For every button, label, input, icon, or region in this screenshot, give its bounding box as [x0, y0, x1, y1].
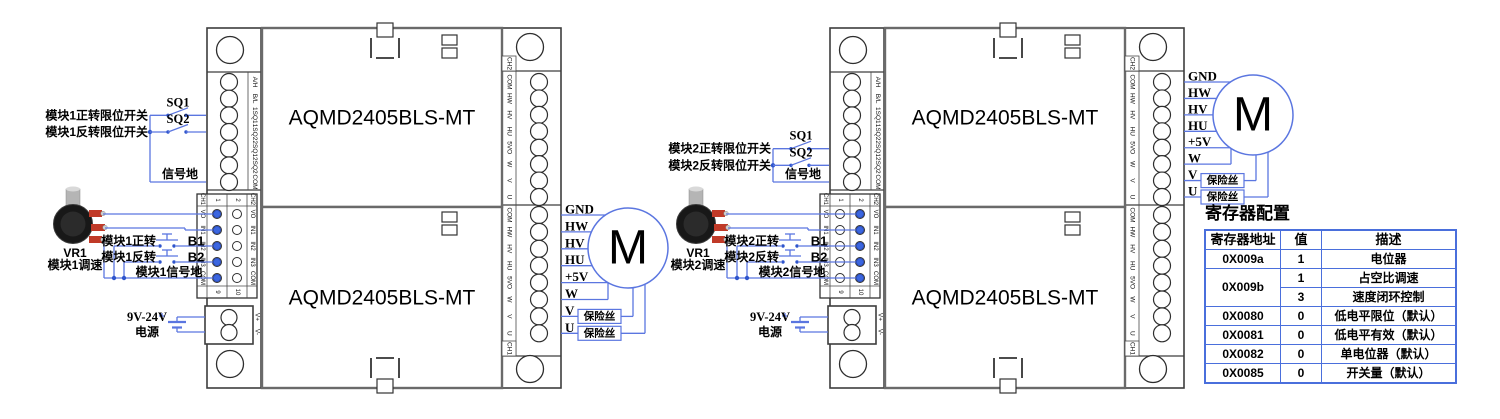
table-row: 0X009b1占空比调速	[1205, 269, 1456, 288]
connection-dot	[213, 242, 220, 249]
potentiometer-body	[61, 212, 86, 237]
strip-pin-label: HU	[1129, 261, 1136, 271]
pot-function-label: 模块2调速	[671, 257, 726, 272]
register-value-cell: 0	[1281, 364, 1322, 384]
io-pin-label: IN3	[249, 257, 255, 267]
terminal-hole	[221, 90, 238, 107]
power-name-label: 电源	[135, 324, 159, 339]
motor-pin-label: HV	[1188, 101, 1208, 116]
mounting-hole	[217, 37, 244, 64]
strip-pin-label: COM	[506, 74, 513, 89]
strip-pin-label: HW	[506, 226, 513, 238]
terminal-hole	[221, 74, 238, 91]
module-name-label: AQMD2405BLS-MT	[289, 107, 476, 130]
pot-shaft-top	[66, 187, 80, 192]
junction-dot	[735, 276, 739, 280]
io-terminal	[233, 258, 242, 267]
pcb-footprint	[377, 23, 393, 37]
strip-pin-label: COM	[1129, 207, 1136, 222]
terminal-hole	[844, 140, 861, 157]
register-value-cell: 0	[1281, 326, 1322, 345]
table-row: 0X00800低电平限位（默认）	[1205, 307, 1456, 326]
fuse-label: 保险丝	[1206, 174, 1239, 187]
register-table-body: 寄存器地址值描述0X009a1电位器0X009b1占空比调速3速度闭环控制0X0…	[1205, 230, 1456, 383]
connection-dot	[856, 242, 863, 249]
button-function-label: 模块1反转	[101, 249, 156, 264]
terminal-hole	[531, 106, 548, 123]
pin-number: 10	[234, 289, 240, 296]
column-header: 描述	[1322, 230, 1457, 250]
pot-terminal	[89, 236, 102, 243]
pot-shaft-top	[689, 187, 703, 192]
button-terminal	[158, 260, 161, 263]
terminal-hole	[844, 107, 861, 124]
motor-pin-label: W	[1188, 151, 1201, 166]
terminal-hole	[1154, 207, 1171, 224]
terminal-hole	[844, 124, 861, 141]
io-pin-label: COM	[249, 271, 255, 285]
register-value-cell: 3	[1281, 288, 1322, 307]
strip-pin-label: W	[506, 296, 513, 303]
terminal-hole	[844, 90, 861, 107]
limit-switch-label: 模块1正转限位开关	[45, 107, 148, 122]
terminal-hole	[531, 123, 548, 140]
fuse-label: 保险丝	[583, 326, 616, 339]
terminal-hole	[531, 156, 548, 173]
terminal-hole	[844, 157, 861, 174]
power-voltage-label: 9V-24V	[127, 310, 167, 324]
module-name-label: AQMD2405BLS-MT	[912, 107, 1099, 130]
terminal-hole	[531, 90, 548, 107]
strip-pin-label: HW	[1129, 226, 1136, 238]
io-terminal	[233, 274, 242, 283]
power-pin-label: V+	[254, 313, 261, 321]
terminal-hole	[1154, 123, 1171, 140]
motor-pin-label: V	[1188, 167, 1198, 182]
motor-pin-label: U	[565, 320, 575, 335]
strip-pin-label: COM	[1129, 74, 1136, 89]
button-terminal	[172, 260, 175, 263]
button-name-label: B2	[811, 250, 828, 265]
pcb-footprint	[377, 379, 393, 393]
channel-label: CH2	[872, 193, 878, 206]
mounting-hole	[217, 351, 244, 378]
strip-pin-label: COM	[874, 174, 881, 189]
terminal-hole	[531, 308, 548, 325]
strip-pin-label: 2SQ2	[251, 157, 258, 174]
strip-pin-label: 2SQ1	[874, 140, 881, 157]
strip-pin-label: V	[1129, 314, 1136, 319]
io-pin-label: COM	[872, 271, 878, 285]
button-function-label: 模块1正转	[101, 233, 156, 248]
junction-dot	[745, 276, 749, 280]
switch-name-label: SQ1	[790, 129, 813, 143]
terminal-hole	[844, 174, 861, 191]
terminal-hole	[531, 172, 548, 189]
pcb-footprint	[1065, 35, 1080, 45]
terminal-hole	[1154, 90, 1171, 107]
connection-dot	[213, 274, 220, 281]
strip-pin-label: U	[1129, 331, 1136, 336]
register-value-cell: 0	[1281, 345, 1322, 364]
strip-pin-label: 5VO	[506, 276, 513, 289]
power-pin-label: V-	[254, 329, 261, 335]
io-pin-label: IN2	[872, 241, 878, 251]
terminal-hole	[221, 124, 238, 141]
junction-dot	[122, 276, 126, 280]
motor-pin-label: +5V	[1188, 134, 1212, 149]
terminal-hole	[531, 207, 548, 224]
register-value-cell: 1	[1281, 269, 1322, 288]
terminal-hole	[844, 310, 860, 326]
terminal-hole	[221, 325, 237, 341]
register-table-title: 寄存器配置	[1205, 203, 1457, 225]
motor-pin-label: HV	[565, 235, 585, 250]
motor-pin-label: HU	[1188, 118, 1208, 133]
terminal-hole	[1154, 189, 1171, 206]
register-desc-cell: 低电平有效（默认）	[1322, 326, 1457, 345]
register-address-cell: 0X0081	[1205, 326, 1281, 345]
strip-pin-label: A/H	[874, 77, 881, 88]
register-desc-cell: 速度闭环控制	[1322, 288, 1457, 307]
table-row: 0X00810低电平有效（默认）	[1205, 326, 1456, 345]
table-row: 0X00850开关量（默认）	[1205, 364, 1456, 384]
potentiometer-body	[684, 212, 709, 237]
register-value-cell: 0	[1281, 307, 1322, 326]
button-function-label: 模块2反转	[724, 249, 779, 264]
motor-pin-label: HW	[565, 218, 588, 233]
pcb-footprint	[1065, 212, 1080, 222]
motor-label: M	[608, 222, 648, 275]
fuse-label: 保险丝	[583, 309, 616, 322]
strip-pin-label: 5VO	[1129, 276, 1136, 289]
motor-pin-label: GND	[565, 202, 594, 217]
terminal-hole	[1154, 172, 1171, 189]
strip-pin-label: 5VO	[506, 141, 513, 154]
strip-pin-label: HW	[506, 93, 513, 105]
terminal-hole	[1154, 156, 1171, 173]
table-header-row: 寄存器地址值描述	[1205, 230, 1456, 250]
motor-pin-label: U	[1188, 184, 1198, 199]
power-pin-label: V-	[877, 329, 884, 335]
terminal-hole	[531, 257, 548, 274]
io-pin-label: VO	[249, 210, 255, 219]
mounting-hole	[1140, 356, 1167, 383]
mounting-hole	[517, 356, 544, 383]
pcb-footprint	[1065, 225, 1080, 235]
strip-pin-label: V	[506, 314, 513, 319]
terminal-hole	[1154, 223, 1171, 240]
strip-pin-label: 1SQ1	[251, 107, 258, 124]
strip-pin-label: U	[506, 331, 513, 336]
power-voltage-label: 9V-24V	[750, 310, 790, 324]
motor-pin-label: W	[565, 286, 578, 301]
register-desc-cell: 电位器	[1322, 250, 1457, 269]
motor-pin-label: V	[565, 303, 575, 318]
switch-name-label: SQ1	[167, 95, 190, 109]
io-terminal	[233, 210, 242, 219]
column-header: 值	[1281, 230, 1322, 250]
connection-dot	[856, 258, 863, 265]
terminal-hole	[1154, 257, 1171, 274]
io-terminal	[233, 242, 242, 251]
button-terminal	[158, 244, 161, 247]
module-name-label: AQMD2405BLS-MT	[912, 287, 1099, 310]
strip-pin-label: HU	[1129, 127, 1136, 137]
terminal-hole	[1154, 106, 1171, 123]
terminal-hole	[1154, 240, 1171, 257]
terminal-hole	[531, 291, 548, 308]
mounting-hole	[840, 37, 867, 64]
terminal-hole	[221, 107, 238, 124]
pcb-footprint	[442, 48, 457, 58]
io-pin-label: IN3	[872, 257, 878, 267]
switch-name-label: SQ2	[167, 112, 190, 126]
channel-label: CH1	[1129, 342, 1136, 355]
pot-terminal	[89, 210, 102, 217]
register-address-cell: 0X0085	[1205, 364, 1281, 384]
strip-pin-label: 2SQ1	[251, 140, 258, 157]
pcb-footprint	[442, 35, 457, 45]
terminal-hole	[531, 139, 548, 156]
terminal-hole	[221, 140, 238, 157]
register-table: 寄存器地址值描述0X009a1电位器0X009b1占空比调速3速度闭环控制0X0…	[1204, 229, 1457, 384]
terminal-hole	[1154, 291, 1171, 308]
strip-pin-label: HU	[506, 127, 513, 137]
strip-pin-label: 2SQ2	[874, 157, 881, 174]
power-pin-label: V+	[877, 313, 884, 321]
connection-dot	[856, 226, 863, 233]
mounting-hole	[1140, 34, 1167, 61]
motor-pin-label: +5V	[565, 269, 589, 284]
strip-pin-label: HV	[1129, 244, 1136, 254]
pcb-footprint	[442, 225, 457, 235]
strip-pin-label: 1SQ1	[874, 107, 881, 124]
limit-switch-label: 模块2反转限位开关	[668, 157, 771, 172]
register-address-cell: 0X0082	[1205, 345, 1281, 364]
button-function-label: 模块2正转	[724, 233, 779, 248]
fuse-label: 保险丝	[1206, 190, 1239, 203]
strip-pin-label: W	[1129, 161, 1136, 168]
terminal-hole	[1154, 74, 1171, 91]
strip-pin-label: 5VO	[1129, 141, 1136, 154]
strip-pin-label: HW	[1129, 93, 1136, 105]
pin-number: 10	[857, 289, 863, 296]
terminal-hole	[531, 223, 548, 240]
button-terminal	[781, 260, 784, 263]
channel-label: CH2	[249, 193, 255, 206]
strip-pin-label: HV	[506, 110, 513, 120]
strip-pin-label: B/L	[874, 94, 881, 104]
signal-ground-label: 信号地	[785, 166, 821, 181]
channel-label: CH1	[199, 193, 205, 206]
pot-terminal	[712, 236, 725, 243]
pcb-footprint	[1065, 48, 1080, 58]
strip-pin-label: V	[1129, 178, 1136, 183]
column-header: 寄存器地址	[1205, 230, 1281, 250]
strip-pin-label: A/H	[251, 77, 258, 88]
limit-switch-label: 模块1反转限位开关	[45, 124, 148, 139]
motor-pin-label: HW	[1188, 85, 1211, 100]
terminal-hole	[1154, 274, 1171, 291]
channel-label: CH2	[506, 57, 513, 70]
register-address-cell: 0X009b	[1205, 269, 1281, 307]
pot-terminal	[712, 210, 725, 217]
button-name-label: B2	[188, 250, 205, 265]
io-pin-label: IN2	[249, 241, 255, 251]
channel-label: CH1	[506, 342, 513, 355]
connection-dot	[213, 226, 220, 233]
strip-pin-label: 1SQ2	[251, 124, 258, 141]
register-address-cell: 0X009a	[1205, 250, 1281, 269]
register-desc-cell: 开关量（默认）	[1322, 364, 1457, 384]
pcb-footprint	[1000, 23, 1016, 37]
terminal-hole	[531, 74, 548, 91]
register-value-cell: 1	[1281, 250, 1322, 269]
strip-pin-label: W	[1129, 296, 1136, 303]
motor-pin-label: HU	[565, 252, 585, 267]
channel-label: CH2	[1129, 57, 1136, 70]
terminal-hole	[844, 325, 860, 341]
module-name-label: AQMD2405BLS-MT	[289, 287, 476, 310]
button-name-label: B1	[811, 234, 828, 249]
mounting-hole	[840, 351, 867, 378]
strip-pin-label: B/L	[251, 94, 258, 104]
connection-dot	[856, 210, 863, 217]
module-signal-ground-label: 模块1信号地	[136, 264, 203, 279]
limit-switch-label: 模块2正转限位开关	[668, 141, 771, 156]
register-address-cell: 0X0080	[1205, 307, 1281, 326]
terminal-hole	[221, 157, 238, 174]
power-name-label: 电源	[758, 324, 782, 339]
strip-pin-label: HU	[506, 261, 513, 271]
connection-dot	[213, 258, 220, 265]
button-terminal	[172, 244, 175, 247]
io-pin-label: IN1	[872, 225, 878, 235]
strip-pin-label: COM	[506, 207, 513, 222]
pcb-footprint	[1000, 379, 1016, 393]
terminal-hole	[1154, 325, 1171, 342]
junction-dot	[112, 276, 116, 280]
strip-pin-label: HV	[506, 244, 513, 254]
terminal-hole	[221, 174, 238, 191]
motor-pin-label: GND	[1188, 69, 1217, 84]
motor-label: M	[1233, 89, 1273, 142]
strip-pin-label: COM	[251, 174, 258, 189]
pot-function-label: 模块1调速	[48, 257, 103, 272]
register-desc-cell: 占空比调速	[1322, 269, 1457, 288]
register-desc-cell: 单电位器（默认）	[1322, 345, 1457, 364]
terminal-hole	[531, 240, 548, 257]
io-terminal	[233, 226, 242, 235]
strip-pin-label: W	[506, 161, 513, 168]
switch-name-label: SQ2	[790, 145, 813, 159]
module-signal-ground-label: 模块2信号地	[759, 264, 826, 279]
strip-pin-label: U	[1129, 195, 1136, 200]
button-name-label: B1	[188, 234, 205, 249]
wiring-diagram-page: AQMD2405BLS-MTAQMD2405BLS-MTA/HB/L1SQ11S…	[0, 0, 1500, 419]
register-desc-cell: 低电平限位（默认）	[1322, 307, 1457, 326]
connection-dot	[856, 274, 863, 281]
signal-ground-label: 信号地	[162, 166, 198, 181]
register-config-panel: 寄存器配置 寄存器地址值描述0X009a1电位器0X009b1占空比调速3速度闭…	[1204, 203, 1457, 384]
channel-label: CH1	[822, 193, 828, 206]
terminal-hole	[531, 274, 548, 291]
strip-pin-label: HV	[1129, 110, 1136, 120]
connection-dot	[213, 210, 220, 217]
io-pin-label: IN1	[249, 225, 255, 235]
table-row: 0X00820单电位器（默认）	[1205, 345, 1456, 364]
terminal-hole	[531, 189, 548, 206]
button-terminal	[781, 244, 784, 247]
strip-pin-label: 1SQ2	[874, 124, 881, 141]
strip-pin-label: V	[506, 178, 513, 183]
strip-pin-label: U	[506, 195, 513, 200]
terminal-hole	[1154, 139, 1171, 156]
terminal-hole	[1154, 308, 1171, 325]
button-terminal	[795, 244, 798, 247]
terminal-hole	[531, 325, 548, 342]
terminal-hole	[844, 74, 861, 91]
pcb-footprint	[442, 212, 457, 222]
mounting-hole	[517, 34, 544, 61]
table-row: 0X009a1电位器	[1205, 250, 1456, 269]
terminal-hole	[221, 310, 237, 326]
io-pin-label: VO	[872, 210, 878, 219]
button-terminal	[795, 260, 798, 263]
